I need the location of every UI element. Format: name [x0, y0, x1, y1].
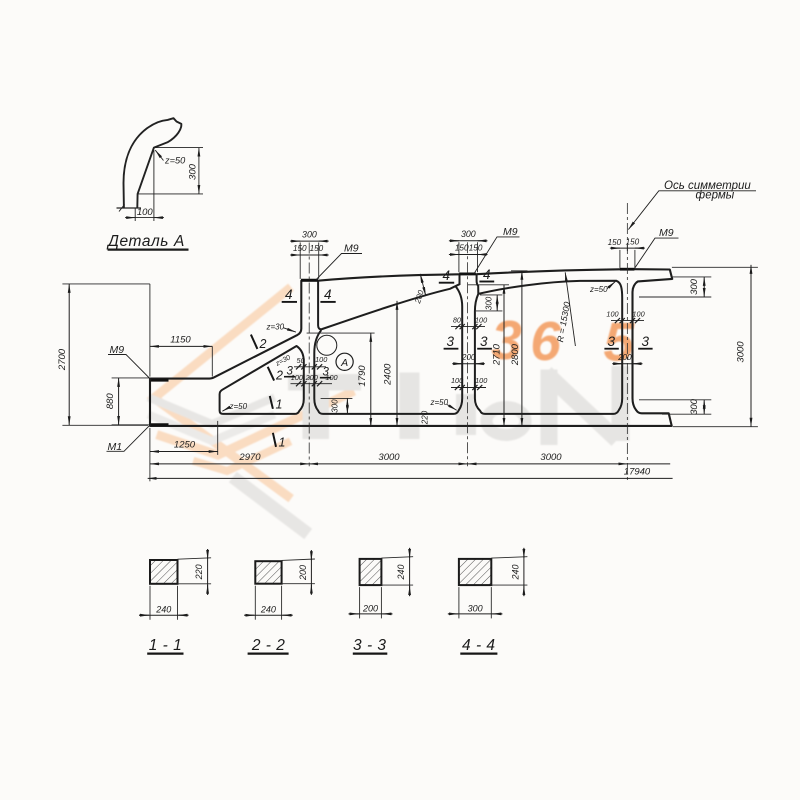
svg-text:50: 50: [297, 356, 305, 365]
svg-text:z=50: z=50: [229, 402, 248, 411]
svg-text:М9: М9: [503, 226, 518, 238]
svg-text:3: 3: [323, 367, 330, 379]
svg-text:2700: 2700: [57, 348, 68, 371]
svg-text:3: 3: [447, 334, 455, 349]
svg-text:80: 80: [453, 315, 461, 324]
svg-text:Деталь А: Деталь А: [106, 233, 185, 250]
svg-text:4: 4: [285, 287, 293, 302]
svg-text:2970: 2970: [238, 452, 261, 463]
svg-text:300: 300: [689, 398, 700, 415]
svg-text:240: 240: [510, 564, 520, 580]
svg-text:фермы: фермы: [696, 190, 735, 202]
svg-text:200: 200: [298, 565, 308, 581]
svg-text:3: 3: [480, 334, 488, 349]
svg-text:300: 300: [188, 163, 199, 180]
svg-text:4: 4: [324, 287, 332, 302]
svg-text:2: 2: [259, 337, 267, 351]
svg-text:100: 100: [606, 310, 618, 319]
svg-text:300: 300: [461, 229, 476, 239]
svg-text:100: 100: [475, 315, 487, 324]
svg-text:2: 2: [275, 369, 283, 383]
svg-text:100: 100: [315, 355, 327, 364]
svg-text:200: 200: [362, 603, 378, 613]
svg-text:3 - 3: 3 - 3: [353, 637, 387, 654]
svg-text:4 - 4: 4 - 4: [462, 637, 496, 654]
svg-text:200: 200: [305, 373, 318, 382]
svg-text:1: 1: [279, 436, 286, 450]
svg-text:1790: 1790: [357, 365, 368, 387]
svg-text:300: 300: [689, 278, 700, 295]
svg-text:2 - 2: 2 - 2: [251, 637, 286, 654]
svg-text:3000: 3000: [736, 341, 747, 363]
svg-text:1250: 1250: [174, 440, 196, 451]
svg-text:300: 300: [468, 603, 483, 613]
svg-text:z=30: z=30: [266, 323, 285, 332]
svg-text:3: 3: [287, 366, 294, 378]
svg-text:100: 100: [451, 376, 463, 385]
svg-text:220: 220: [421, 410, 430, 425]
svg-text:240: 240: [396, 564, 406, 580]
svg-text:200: 200: [461, 353, 476, 362]
svg-text:А: А: [340, 357, 348, 369]
svg-text:3000: 3000: [540, 452, 562, 463]
svg-text:М9: М9: [110, 344, 125, 356]
svg-text:150: 150: [455, 244, 469, 253]
svg-text:220: 220: [194, 564, 204, 580]
svg-text:3000: 3000: [378, 452, 400, 463]
svg-text:100: 100: [137, 207, 154, 218]
svg-text:200: 200: [617, 353, 632, 362]
svg-text:150: 150: [310, 244, 324, 253]
svg-text:4: 4: [483, 267, 491, 282]
svg-text:150: 150: [608, 238, 622, 247]
svg-text:240: 240: [260, 605, 276, 615]
svg-text:300: 300: [330, 399, 339, 413]
svg-text:М9: М9: [344, 243, 359, 255]
svg-text:1150: 1150: [170, 334, 191, 345]
svg-text:3: 3: [608, 334, 616, 349]
svg-text:17940: 17940: [624, 467, 651, 478]
svg-text:100: 100: [475, 376, 487, 385]
svg-text:300: 300: [302, 230, 317, 240]
svg-text:z=50: z=50: [430, 398, 449, 407]
svg-text:3: 3: [642, 334, 650, 349]
svg-text:100: 100: [633, 310, 645, 319]
svg-text:4: 4: [443, 268, 451, 283]
svg-text:2710: 2710: [492, 343, 503, 366]
svg-text:300: 300: [485, 296, 494, 310]
svg-text:150: 150: [469, 243, 483, 252]
svg-text:1: 1: [276, 398, 283, 412]
svg-text:М9: М9: [659, 227, 674, 239]
svg-text:880: 880: [105, 393, 116, 410]
svg-text:2400: 2400: [382, 363, 393, 386]
svg-text:2800: 2800: [510, 343, 521, 366]
svg-text:240: 240: [155, 605, 171, 615]
svg-text:1 - 1: 1 - 1: [149, 637, 183, 654]
svg-text:z=50: z=50: [589, 285, 608, 294]
svg-text:150: 150: [293, 244, 307, 253]
svg-text:150: 150: [626, 238, 640, 247]
svg-text:z=50: z=50: [164, 155, 186, 165]
